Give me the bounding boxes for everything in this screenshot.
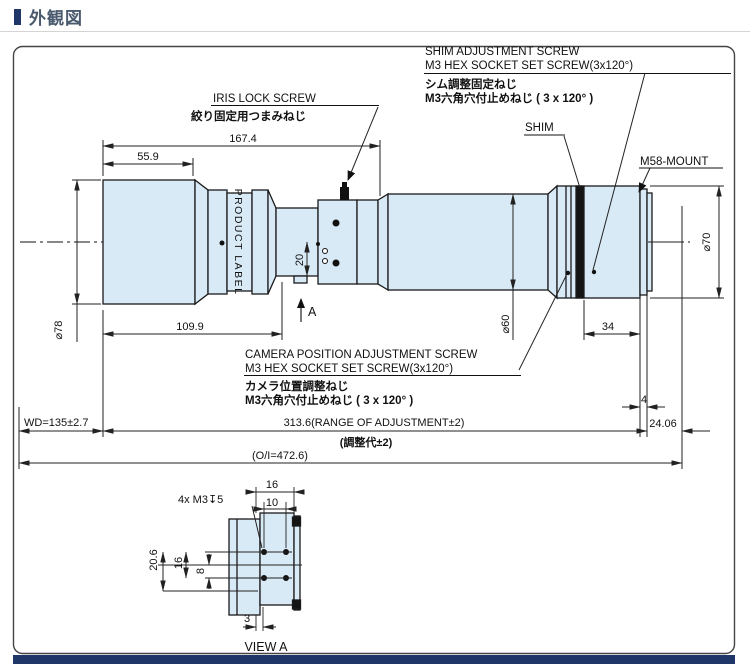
camera-label-en1: CAMERA POSITION ADJUSTMENT SCREW <box>245 349 478 361</box>
dim-dia-rear: ⌀70 <box>701 233 713 252</box>
iris-knob-stem <box>342 182 347 188</box>
iris-ring <box>357 200 378 284</box>
barrel-dot <box>220 241 225 246</box>
va-clamp-top <box>293 517 301 526</box>
iris-screw-top <box>333 220 340 227</box>
iris-dot <box>316 242 320 246</box>
view-a-title: VIEW A <box>244 640 288 654</box>
shim-adjust-label-en1: SHIM ADJUSTMENT SCREW <box>425 46 580 58</box>
camera-screw-dot <box>566 271 570 275</box>
iris-block <box>318 200 357 284</box>
iris-label-en: IRIS LOCK SCREW <box>213 93 316 105</box>
dim-shim-to-flange: 34 <box>602 321 614 333</box>
va-clamp-bottom <box>293 600 301 609</box>
waist-chamfer <box>268 190 276 294</box>
shim-label: SHIM <box>525 122 554 134</box>
view-a-shapes <box>229 513 301 615</box>
rear-barrel <box>557 186 640 298</box>
dim-adjustment-range-jp: (調整代±2) <box>340 435 393 449</box>
view-a-drawing: 16 10 20.6 16 8 3 4x M3↧5 VIEW A <box>148 479 303 654</box>
front-chamfer <box>195 180 208 304</box>
camera-label-en2: M3 HEX SOCKET SET SCREW(3x120°) <box>245 363 453 375</box>
va-dim-height: 20.6 <box>148 549 160 570</box>
shim-adjust-label-jp2: M3六角穴付止めねじ ( 3 x 120° ) <box>425 91 593 105</box>
outline-drawing: PRODUCT LABEL <box>0 0 750 664</box>
va-flange <box>260 513 294 605</box>
iris-knob-icon <box>340 187 349 200</box>
bottom-bar <box>13 655 735 664</box>
dim-working-distance: WD=135±2.7 <box>24 417 88 429</box>
dim-dia-front: ⌀78 <box>53 321 65 340</box>
va-dim-hole-h: 10 <box>266 497 278 509</box>
main-barrel <box>388 194 548 290</box>
dim-overall: (O/I=472.6) <box>252 450 308 462</box>
va-barrel <box>229 519 260 615</box>
dim-front-length: 55.9 <box>137 151 158 163</box>
product-label-text: PRODUCT LABEL <box>232 189 244 296</box>
va-dim-depth: 3 <box>244 613 250 625</box>
dim-front-section: 109.9 <box>176 321 204 333</box>
dim-front-to-iris: 167.4 <box>229 133 257 145</box>
va-dim-width: 16 <box>266 479 278 491</box>
iris-label-jp: 絞り固定用つまみねじ <box>191 109 306 123</box>
dim-iris-offset: 20 <box>294 254 306 266</box>
waist-tab <box>294 276 307 283</box>
iris-leader <box>348 107 378 180</box>
mount-label: M58-MOUNT <box>640 156 708 168</box>
va-rear-plate <box>294 516 300 610</box>
iris-hole-2 <box>323 259 328 264</box>
front-barrel <box>103 180 195 304</box>
iris-screw-bottom <box>333 260 340 267</box>
shim-adjust-label-jp1: シム調整固定ねじ <box>425 77 517 91</box>
view-direction-label: A <box>308 305 317 319</box>
dim-flange-back: 24.06 <box>649 418 677 430</box>
camera-label-jp2: M3六角穴付止めねじ ( 3 x 120° ) <box>245 393 413 407</box>
iris-hole-1 <box>323 249 328 254</box>
camera-label-jp1: カメラ位置調整ねじ <box>245 379 349 393</box>
shim-leader <box>564 136 580 188</box>
dim-adjustment-range: 313.6(RANGE OF ADJUSTMENT±2) <box>284 417 465 429</box>
lens-body <box>103 180 652 304</box>
shim-adjust-label-en2: M3 HEX SOCKET SET SCREW(3x120°) <box>425 60 633 72</box>
shim-band <box>576 186 584 298</box>
mid-chamfer <box>378 194 388 290</box>
va-holes-callout: 4x M3↧5 <box>178 494 223 506</box>
dim-dia-main: ⌀60 <box>500 315 512 334</box>
drawing-page: 外観図 <box>0 0 750 664</box>
mount-flange <box>640 189 647 295</box>
rear-chamfer <box>548 186 557 298</box>
shim-screw-dot <box>592 270 596 274</box>
va-dim-hole-v: 16 <box>173 557 185 569</box>
ring-2 <box>252 190 268 294</box>
dim-flange-thickness: 4 <box>641 394 647 406</box>
va-dim-half: 8 <box>195 568 207 574</box>
